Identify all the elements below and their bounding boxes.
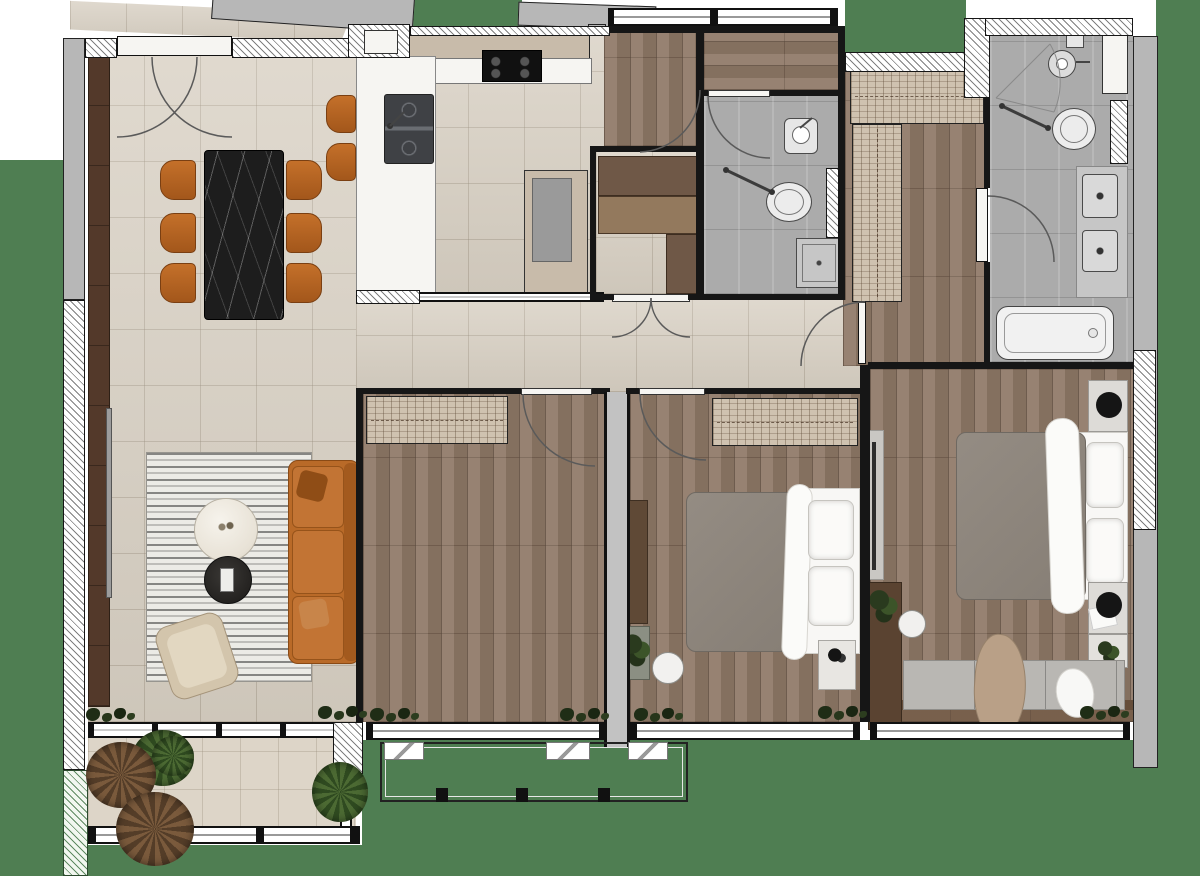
wall-masterbath-top [985, 18, 1133, 36]
dining-chair [160, 263, 196, 303]
window-post [88, 722, 94, 738]
bedroom3-wardrobe [366, 396, 508, 444]
master-window [870, 722, 1130, 740]
vanity-tray [1082, 174, 1118, 218]
dresser-plant [868, 584, 900, 624]
kitchen-south-wall-stub [356, 290, 420, 304]
wall-entry-left [85, 38, 117, 58]
dining-chair [160, 160, 196, 200]
wall-bedroom3-top-left [356, 388, 522, 394]
column-bedroom-divider [604, 392, 630, 748]
bathroom1-door-threshold [708, 90, 770, 97]
wall-corridor-end [838, 26, 845, 90]
table-decor [216, 520, 236, 534]
entry-door-slab [117, 36, 232, 56]
wall-bathroom1-right [838, 90, 845, 300]
bedroom2-pillow [808, 500, 854, 560]
dining-chair [286, 213, 322, 253]
side-table-tray [220, 568, 234, 592]
master-bath-niche-hatch [1110, 100, 1128, 164]
wall-pantry-bottom-right [688, 294, 704, 300]
terrace-vent [628, 742, 668, 760]
terrace-post [598, 788, 610, 802]
shaft-niche [364, 30, 398, 54]
living-room-window [88, 722, 358, 738]
outdoor-grass-right [1156, 0, 1200, 876]
window-post [853, 722, 860, 740]
wall-masterbath-left-upper [984, 96, 990, 188]
railing-post [88, 828, 96, 842]
exterior-wall-left-end [63, 770, 88, 876]
wall-entry-right [232, 38, 352, 58]
basin-bowl [1056, 58, 1068, 70]
master-pillow [1086, 518, 1124, 584]
window-post [608, 8, 614, 26]
shower-tray-inner [802, 244, 836, 282]
kitchen-sink [384, 94, 434, 164]
corridor-floor [704, 33, 838, 90]
railing-post [256, 828, 264, 842]
circulation-floor [356, 296, 868, 392]
wall-bedroom2-top-left-stub [626, 388, 640, 394]
sofa-pillow [298, 598, 330, 630]
window-post [710, 8, 718, 26]
sofa-cushion [292, 530, 344, 594]
bedroom2-window [630, 722, 860, 740]
hall-master-door-leaf [858, 302, 866, 364]
pantry-door-threshold [612, 294, 690, 302]
railing-post [350, 828, 360, 842]
balcony-plant-dry [116, 792, 194, 866]
bedroom3-window [366, 722, 606, 740]
wall-master-top [868, 362, 1133, 369]
window-post [280, 722, 286, 738]
window-post [1123, 722, 1130, 740]
wall-pantry-left [590, 146, 596, 300]
window-post [599, 722, 606, 740]
fridge-door-panel [532, 178, 572, 262]
wall-corridor-top [604, 26, 845, 33]
master-bath-niche [1102, 32, 1128, 94]
wall-kitchen-top [410, 26, 610, 36]
wardrobe-rail-line [855, 96, 979, 97]
bar-stool [326, 143, 356, 181]
outdoor-grass-top-b [845, 0, 966, 54]
exterior-wall-left-lower [63, 300, 85, 770]
bedroom2-door-threshold [639, 388, 705, 395]
corridor-clerestory-window [608, 8, 838, 26]
balcony-plant-green-small [152, 736, 194, 776]
window-post [630, 722, 637, 740]
master-tv-panel [872, 442, 876, 570]
master-tv-console [868, 430, 884, 580]
nightstand-decor [826, 646, 848, 666]
master-pillow [1086, 442, 1124, 508]
terrace-vent [384, 742, 424, 760]
wall-bedroom2-master [860, 365, 870, 722]
wardrobe-rail-line [717, 422, 853, 423]
bar-stool [326, 95, 356, 133]
wardrobe-rail-line [877, 129, 878, 297]
tv-panel [106, 408, 112, 598]
wall-kitchen-hall-divider [696, 26, 704, 300]
bedroom2-stool [652, 652, 684, 684]
cooktop [482, 50, 542, 82]
bathtub-drain [1088, 328, 1098, 338]
outdoor-grass-bottom-left [64, 845, 362, 876]
dining-chair [286, 263, 322, 303]
bedroom3-door-threshold [521, 388, 592, 395]
terrace-vent [546, 742, 590, 760]
nightstand-lamp [1096, 392, 1122, 418]
exterior-wall-right-hatch [1133, 350, 1156, 530]
vanity-tray [1082, 230, 1118, 272]
master-blanket [1045, 417, 1086, 614]
wall-bedroom3-left [356, 392, 363, 722]
balcony-plant-right [312, 762, 368, 822]
wall-masterbath-left-lower [984, 262, 990, 368]
window-post [366, 722, 373, 740]
window-post [216, 722, 222, 738]
master-stool [898, 610, 926, 638]
pantry-shelf-side [666, 234, 698, 294]
kitchen-pass-frame [420, 292, 604, 302]
nightstand-lamp [1096, 592, 1122, 618]
wall-bathroom1-bottom [698, 294, 845, 300]
media-wall-cabinet [88, 57, 110, 707]
bedroom2-pillow [808, 566, 854, 626]
exterior-wall-left-upper [63, 38, 85, 300]
bedroom2-wardrobe [712, 398, 858, 446]
master-toilet-seat [1060, 115, 1088, 143]
wall-bathroom1-top-right [770, 90, 845, 96]
wall-bedroom2-top-right [704, 388, 868, 394]
bathroom1-toilet-seat [774, 189, 804, 215]
terrace-post [516, 788, 528, 802]
window-post [830, 8, 838, 26]
masterbath-door-slab [976, 188, 988, 262]
wall-pantry-bottom-left [590, 294, 614, 300]
window-post [870, 722, 877, 740]
dining-table [204, 150, 284, 320]
bathroom1-basin-bowl [792, 126, 810, 144]
dining-chair [160, 213, 196, 253]
soap-tray [1066, 34, 1084, 48]
kitchen-island [356, 56, 436, 296]
dining-chair [286, 160, 322, 200]
hall-floor [604, 26, 696, 146]
floor-plan-canvas [0, 0, 1200, 876]
outdoor-grass-left [0, 160, 64, 876]
walkin-wardrobe-left [852, 124, 902, 302]
wall-pantry-top [590, 146, 700, 152]
wall-walkin-top [845, 52, 967, 72]
wardrobe-rail-line [371, 420, 503, 421]
pantry-shelf-mid [598, 196, 698, 234]
pantry-shelf-upper [598, 156, 698, 196]
terrace-post [436, 788, 448, 802]
